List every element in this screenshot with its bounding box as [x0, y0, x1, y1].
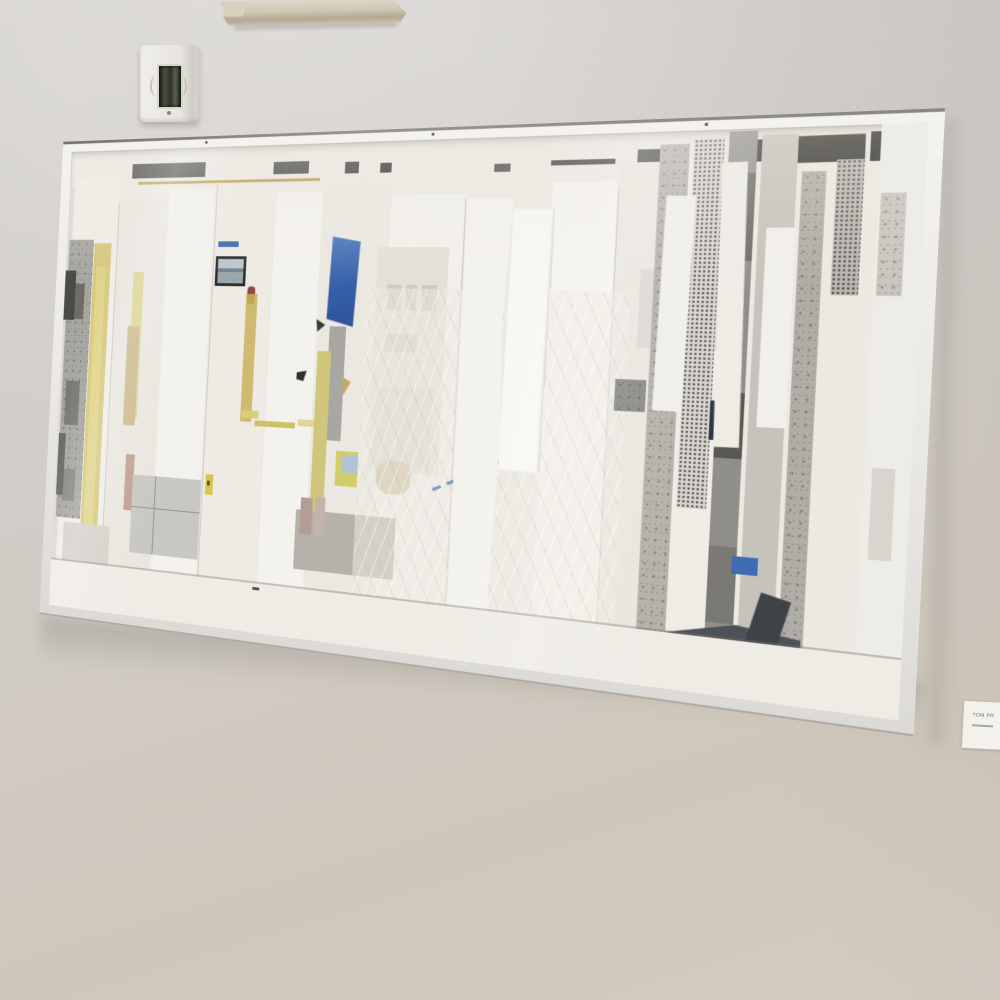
- glass-reflection-step: [650, 303, 675, 349]
- dark-segment: [723, 173, 756, 261]
- label-artist-name: TOM PR: [972, 713, 1000, 720]
- torn-white-overlay: [713, 162, 748, 448]
- collage-seam: [596, 186, 620, 630]
- gray-panel: [129, 474, 201, 559]
- frame-bottom-edge: [39, 612, 913, 736]
- collage-fragment: [551, 159, 616, 166]
- halftone-strip: [676, 138, 725, 509]
- navy-patch: [708, 400, 733, 441]
- collage-strip: [530, 181, 617, 646]
- slate-shape: [656, 616, 800, 688]
- speckled-strip: [778, 171, 827, 657]
- collage-strip: [446, 172, 551, 638]
- gray-strip: [702, 131, 758, 682]
- mauve-strip: [314, 497, 326, 537]
- halftone-strip: [830, 159, 865, 296]
- collage-fragment: [728, 139, 784, 162]
- label-detail-line: [972, 724, 993, 727]
- collage-fragment: [132, 162, 206, 178]
- bright-white-strip: [498, 208, 556, 473]
- torn-white-overlay: [652, 196, 696, 413]
- collage-fragment: [494, 163, 511, 172]
- frame-screw: [432, 133, 435, 136]
- blue-fragment: [218, 241, 239, 247]
- collage-fragment: [790, 133, 866, 163]
- collage-seam: [445, 199, 466, 602]
- pale-blue-fragment: [342, 455, 359, 474]
- collage-artwork: [49, 123, 929, 721]
- gallery-wall: TOM PR: [0, 0, 1000, 1000]
- switch-clip-left: [150, 76, 161, 96]
- switch-screw: [167, 111, 171, 115]
- photo-fragment: [614, 379, 647, 412]
- collage-strip: [657, 157, 735, 661]
- dark-segment: [705, 545, 737, 625]
- collage-fragment: [345, 162, 359, 174]
- dark-dot: [207, 481, 210, 486]
- torn-white-overlay: [756, 228, 795, 429]
- gray-strip: [735, 134, 799, 698]
- collage-fragment: [380, 163, 392, 173]
- fixture-housing: [223, 0, 406, 26]
- glass-reflection-step: [673, 320, 695, 350]
- framed-photo-fragment: [215, 256, 247, 286]
- gray-shape: [702, 643, 799, 688]
- glass-reflection-building: [637, 269, 723, 351]
- torn-white-strip: [446, 198, 514, 628]
- speckled-strip: [636, 144, 690, 632]
- margin-fragment: [876, 192, 907, 296]
- gallery-photo: { "scene": { "description": "Photograph …: [0, 0, 1000, 1000]
- frame-screw: [205, 141, 208, 144]
- fixture-end-cap: [221, 1, 247, 17]
- crinkled-plastic: [350, 288, 630, 643]
- collage-fragment: [273, 161, 309, 174]
- wall-switch-box: [140, 45, 199, 122]
- collage-fragment: [637, 149, 664, 163]
- artwork-label-card: TOM PR: [962, 701, 1000, 750]
- margin-fragment: [868, 468, 896, 562]
- yellow-bit: [241, 410, 259, 419]
- blue-fragment: [731, 556, 758, 576]
- margin-strip: [852, 123, 929, 721]
- dark-diagonal-strip: [732, 592, 792, 692]
- dark-segment: [713, 392, 745, 459]
- blue-dashed-line: [432, 456, 512, 491]
- switch-clip-right: [176, 76, 187, 96]
- photo-fragment: [64, 380, 80, 425]
- ceiling-light-fixture: [223, 0, 406, 26]
- frame-screw: [705, 123, 709, 126]
- mauve-strip: [299, 497, 313, 535]
- collage-fragment: [870, 130, 910, 161]
- collage-strip: [596, 163, 683, 654]
